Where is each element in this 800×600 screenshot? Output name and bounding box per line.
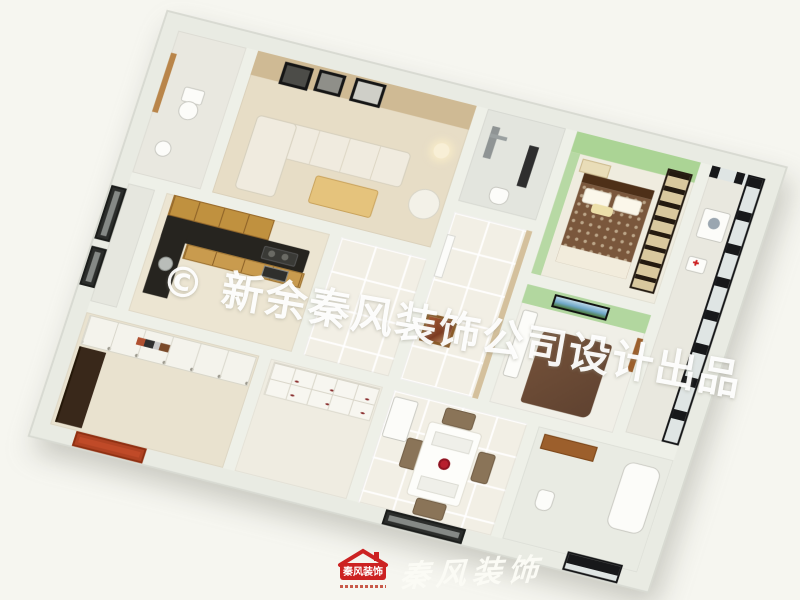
- logo-calligraphy: 秦风装饰: [399, 544, 545, 596]
- coffee-table: [307, 175, 379, 218]
- logo-badge-text: 秦风装饰: [342, 565, 383, 578]
- shower-glass-dark: [517, 145, 540, 188]
- floor-lamp-icon: [432, 142, 452, 161]
- red-flower-centerpiece: [437, 457, 452, 471]
- company-logo: 秦风装饰 秦风装饰: [336, 548, 596, 596]
- apartment-3d-scene: [30, 12, 786, 591]
- brown-bed-rug: [520, 328, 612, 419]
- placemat: [417, 475, 460, 498]
- roof: [340, 551, 386, 565]
- toilet-icon: [533, 488, 557, 513]
- house-logo-icon: 秦风装饰: [336, 548, 390, 588]
- shower-panel-icon: [483, 126, 501, 159]
- wall-painting: [419, 313, 458, 348]
- armchair: [404, 186, 444, 223]
- logo-url-line: [340, 585, 386, 588]
- placemat: [431, 431, 474, 454]
- sink-icon: [152, 139, 173, 159]
- dining-table: [406, 421, 483, 508]
- toilet-icon: [487, 185, 511, 206]
